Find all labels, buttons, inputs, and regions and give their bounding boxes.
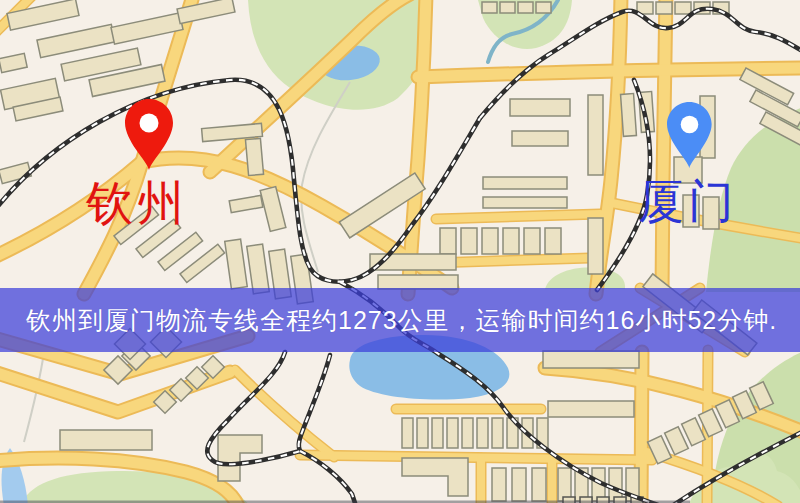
route-map-image[interactable]: 钦州 厦门 钦州到厦门物流专线全程约1273公里，运输时间约16小时52分钟. — [0, 0, 800, 503]
route-info-banner: 钦州到厦门物流专线全程约1273公里，运输时间约16小时52分钟. — [0, 288, 800, 352]
destination-label: 厦门 — [638, 175, 738, 227]
map-canvas: 钦州 厦门 — [0, 0, 800, 503]
origin-label: 钦州 — [85, 176, 188, 229]
route-info-text: 钦州到厦门物流专线全程约1273公里，运输时间约16小时52分钟. — [26, 304, 777, 337]
